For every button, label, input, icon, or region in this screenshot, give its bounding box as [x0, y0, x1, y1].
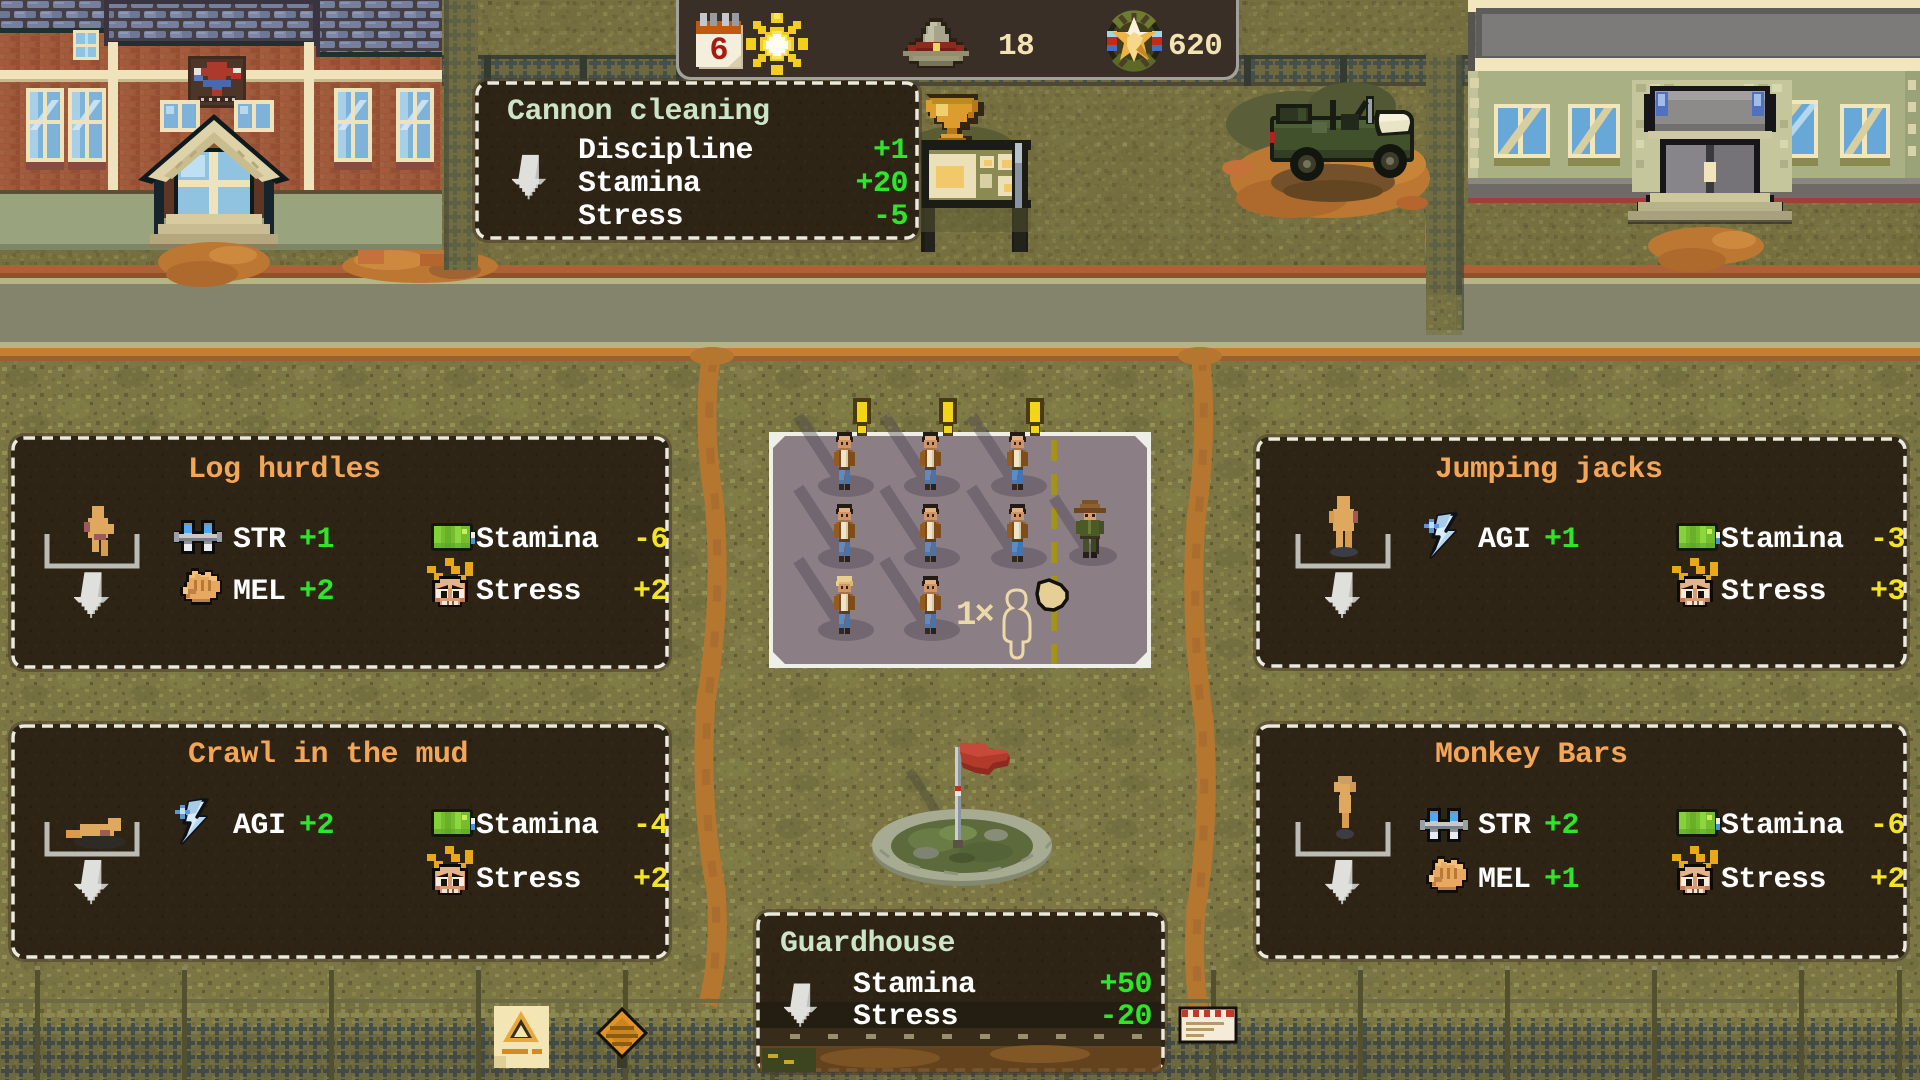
svg-text:MEL: MEL [233, 575, 286, 609]
svg-text:+1: +1 [1544, 863, 1579, 897]
svg-text:STR: STR [1478, 809, 1531, 843]
svg-text:6: 6 [709, 32, 728, 69]
svg-text:Jumping jacks: Jumping jacks [1435, 453, 1663, 487]
svg-text:Stamina: Stamina [476, 523, 599, 557]
svg-text:Monkey Bars: Monkey Bars [1435, 738, 1628, 772]
svg-text:MEL: MEL [1478, 863, 1531, 897]
svg-text:AGI: AGI [233, 809, 286, 843]
svg-text:-6: -6 [1870, 809, 1905, 843]
svg-text:18: 18 [998, 29, 1034, 64]
svg-text:Stamina: Stamina [1721, 809, 1844, 843]
svg-text:+1: +1 [1544, 523, 1579, 557]
svg-text:+2: +2 [1544, 809, 1579, 843]
svg-text:Stress: Stress [578, 200, 683, 234]
svg-text:Stamina: Stamina [476, 809, 599, 843]
svg-text:STR: STR [233, 523, 286, 557]
svg-text:Stress: Stress [853, 1000, 958, 1034]
svg-text:-3: -3 [1870, 523, 1905, 557]
svg-text:Log hurdles: Log hurdles [188, 453, 381, 487]
svg-text:+2: +2 [633, 575, 668, 609]
svg-text:+2: +2 [1870, 863, 1905, 897]
svg-text:Stress: Stress [1721, 575, 1826, 609]
svg-text:620: 620 [1168, 29, 1222, 64]
svg-text:Stress: Stress [476, 575, 581, 609]
svg-text:+50: +50 [1099, 968, 1152, 1002]
svg-text:1×: 1× [956, 597, 993, 635]
svg-text:Stress: Stress [476, 863, 581, 897]
svg-text:Guardhouse: Guardhouse [780, 927, 955, 961]
svg-text:+1: +1 [299, 523, 334, 557]
svg-text:Cannon cleaning: Cannon cleaning [507, 95, 770, 129]
svg-text:AGI: AGI [1478, 523, 1531, 557]
svg-text:-4: -4 [633, 809, 669, 843]
svg-text:Stamina: Stamina [1721, 523, 1844, 557]
svg-text:-6: -6 [633, 523, 668, 557]
svg-text:-20: -20 [1099, 1000, 1152, 1034]
svg-text:+2: +2 [299, 809, 334, 843]
svg-text:+20: +20 [855, 167, 908, 201]
svg-text:+3: +3 [1870, 575, 1905, 609]
svg-text:+1: +1 [873, 134, 908, 168]
svg-text:-5: -5 [873, 200, 908, 234]
svg-text:+2: +2 [633, 863, 668, 897]
svg-text:Stamina: Stamina [853, 968, 976, 1002]
svg-text:Stamina: Stamina [578, 167, 701, 201]
svg-text:Crawl in the mud: Crawl in the mud [188, 738, 468, 772]
svg-text:Discipline: Discipline [578, 134, 753, 168]
svg-text:+2: +2 [299, 575, 334, 609]
svg-text:Stress: Stress [1721, 863, 1826, 897]
